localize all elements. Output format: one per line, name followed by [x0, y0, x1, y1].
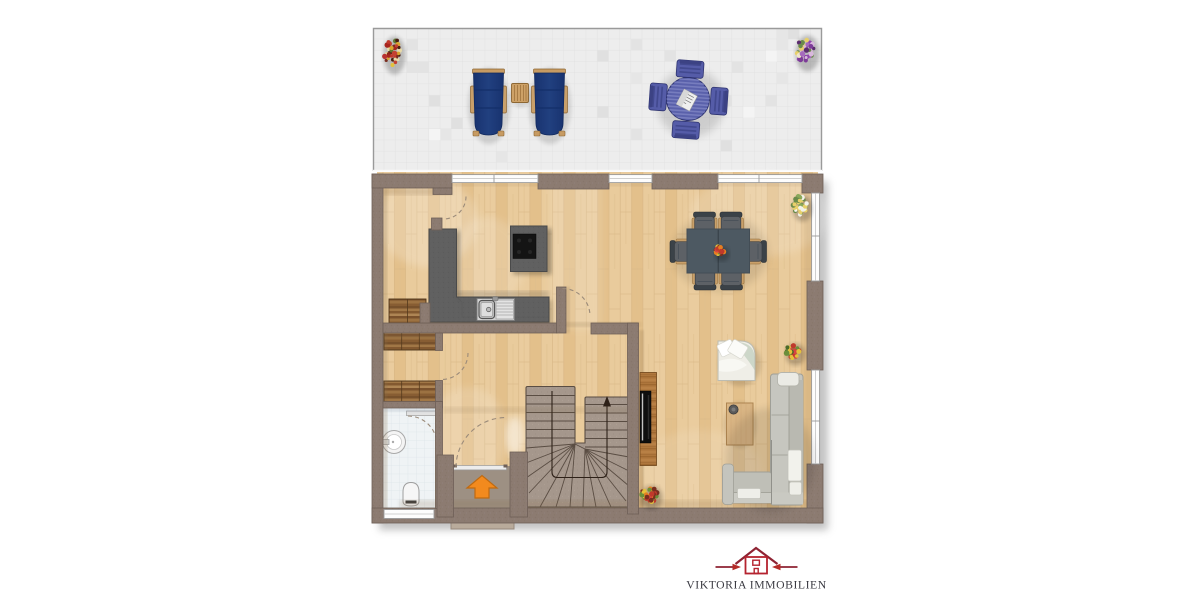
svg-text:VIKTORIA IMMOBILIEN: VIKTORIA IMMOBILIEN [686, 579, 826, 592]
